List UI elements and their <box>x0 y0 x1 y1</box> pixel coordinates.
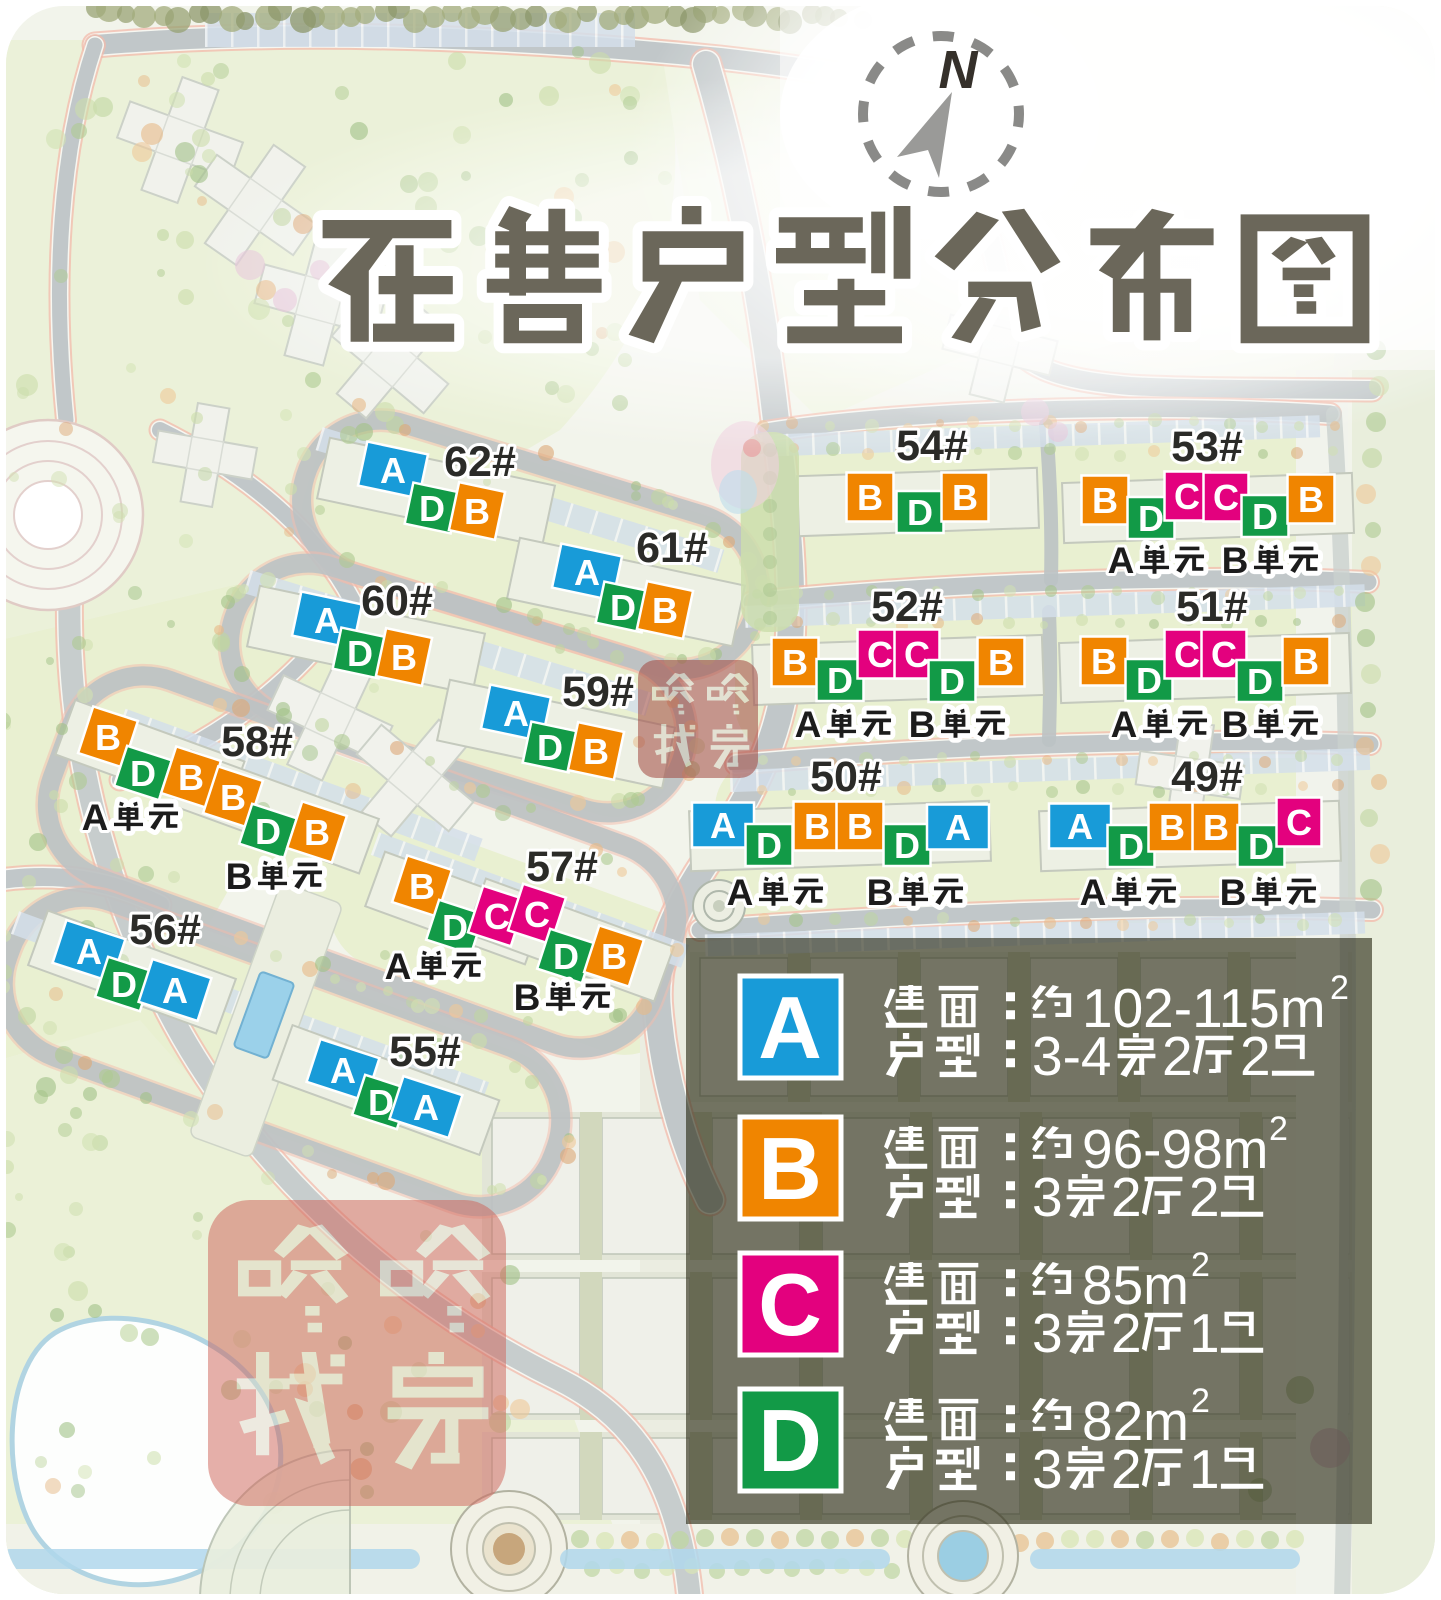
svg-text:A: A <box>385 946 412 987</box>
svg-text:B: B <box>95 717 121 758</box>
svg-text:A: A <box>503 693 529 734</box>
svg-text:B: B <box>909 704 936 745</box>
svg-text:96-98m: 96-98m <box>1082 1118 1268 1180</box>
svg-text:D: D <box>894 825 920 866</box>
svg-text:B: B <box>952 477 978 518</box>
svg-text:61#: 61# <box>636 524 708 572</box>
svg-text:3-4: 3-4 <box>1032 1025 1112 1087</box>
svg-text:1: 1 <box>1189 1302 1220 1364</box>
svg-text:C: C <box>867 634 893 675</box>
svg-text:D: D <box>1136 660 1162 701</box>
svg-text:B: B <box>1298 479 1324 520</box>
svg-text:B: B <box>652 590 678 631</box>
svg-text:2: 2 <box>1111 1438 1142 1500</box>
svg-text:A: A <box>710 805 736 846</box>
svg-text:60#: 60# <box>361 577 433 625</box>
svg-text:52#: 52# <box>871 583 943 631</box>
svg-text:1: 1 <box>1189 1438 1220 1500</box>
svg-text:D: D <box>537 727 563 768</box>
svg-text:B: B <box>988 642 1014 683</box>
svg-text:53#: 53# <box>1171 423 1243 471</box>
svg-text:A: A <box>314 600 340 641</box>
svg-text:2: 2 <box>1162 1025 1193 1087</box>
svg-text:58#: 58# <box>221 718 293 766</box>
svg-text:B: B <box>391 637 417 678</box>
svg-text:B: B <box>601 936 627 977</box>
svg-text:D: D <box>758 1391 822 1490</box>
svg-text:B: B <box>782 642 808 683</box>
svg-text:D: D <box>553 936 579 977</box>
svg-text:A: A <box>574 552 600 593</box>
svg-text:59#: 59# <box>562 668 634 716</box>
svg-text:A: A <box>945 807 971 848</box>
svg-text:A: A <box>758 978 822 1077</box>
svg-text:62#: 62# <box>444 438 516 486</box>
svg-text:2: 2 <box>1269 1110 1288 1148</box>
svg-text:51#: 51# <box>1176 583 1248 631</box>
svg-text:D: D <box>939 661 965 702</box>
svg-text:2: 2 <box>1189 1166 1220 1228</box>
svg-text:B: B <box>220 777 246 818</box>
svg-text:C: C <box>904 634 930 675</box>
svg-text:D: D <box>1247 661 1273 702</box>
svg-text:N: N <box>939 40 979 100</box>
svg-text:57#: 57# <box>526 843 598 891</box>
svg-text:102-115m: 102-115m <box>1082 977 1326 1039</box>
svg-text:B: B <box>514 977 541 1018</box>
svg-text:B: B <box>304 812 330 853</box>
svg-text:2: 2 <box>1330 969 1349 1007</box>
svg-text:A: A <box>330 1050 356 1091</box>
svg-text:C: C <box>1174 634 1200 675</box>
svg-text:2: 2 <box>1191 1382 1210 1420</box>
svg-text:A: A <box>76 931 102 972</box>
svg-text:C: C <box>524 894 550 935</box>
svg-text:2: 2 <box>1240 1025 1271 1087</box>
svg-text:A: A <box>413 1087 439 1128</box>
svg-text:B: B <box>409 866 435 907</box>
svg-text:C: C <box>1286 802 1312 843</box>
svg-text:A: A <box>1111 704 1138 745</box>
svg-text:C: C <box>1213 477 1239 518</box>
svg-text:C: C <box>1211 634 1237 675</box>
svg-text:D: D <box>1248 826 1274 867</box>
svg-text:B: B <box>1222 540 1249 581</box>
svg-text:3: 3 <box>1032 1166 1063 1228</box>
svg-text:B: B <box>1092 480 1118 521</box>
svg-text:D: D <box>907 492 933 533</box>
svg-text:C: C <box>758 1255 822 1354</box>
svg-text:D: D <box>130 753 156 794</box>
svg-text:3: 3 <box>1032 1438 1063 1500</box>
svg-text:D: D <box>1252 496 1278 537</box>
svg-text:D: D <box>111 964 137 1005</box>
svg-text:A: A <box>1108 540 1135 581</box>
svg-text:B: B <box>758 1119 822 1218</box>
svg-text:B: B <box>857 477 883 518</box>
svg-text:50#: 50# <box>810 753 882 801</box>
svg-text:B: B <box>804 806 830 847</box>
svg-text:B: B <box>867 872 894 913</box>
svg-text:B: B <box>1203 807 1229 848</box>
svg-text:B: B <box>583 731 609 772</box>
svg-text:C: C <box>484 896 510 937</box>
svg-text:A: A <box>82 797 109 838</box>
svg-text:54#: 54# <box>896 422 968 470</box>
svg-text:C: C <box>1174 476 1200 517</box>
svg-text:3: 3 <box>1032 1302 1063 1364</box>
svg-text:A: A <box>727 872 754 913</box>
svg-text:2: 2 <box>1111 1166 1142 1228</box>
svg-text:55#: 55# <box>389 1028 461 1076</box>
svg-text:D: D <box>610 587 636 628</box>
svg-text:A: A <box>380 450 406 491</box>
svg-text:D: D <box>442 907 468 948</box>
svg-text:B: B <box>1159 807 1185 848</box>
svg-text:B: B <box>847 806 873 847</box>
svg-text:A: A <box>1067 806 1093 847</box>
svg-text:B: B <box>464 491 490 532</box>
svg-text:A: A <box>795 704 822 745</box>
svg-text:D: D <box>347 633 373 674</box>
svg-text:2: 2 <box>1191 1246 1210 1284</box>
svg-text:D: D <box>756 825 782 866</box>
svg-text:D: D <box>1138 498 1164 539</box>
svg-text:2: 2 <box>1111 1302 1142 1364</box>
svg-text:49#: 49# <box>1171 753 1243 801</box>
svg-text:56#: 56# <box>129 906 201 954</box>
svg-text:B: B <box>178 757 204 798</box>
svg-text:B: B <box>1293 641 1319 682</box>
svg-text:B: B <box>226 856 253 897</box>
svg-text:D: D <box>827 660 853 701</box>
svg-text:A: A <box>162 970 188 1011</box>
svg-text:B: B <box>1220 872 1247 913</box>
svg-text:D: D <box>255 811 281 852</box>
svg-text:A: A <box>1080 872 1107 913</box>
svg-text:D: D <box>1118 826 1144 867</box>
svg-text:B: B <box>1222 704 1249 745</box>
svg-text:B: B <box>1091 641 1117 682</box>
svg-text:D: D <box>419 488 445 529</box>
